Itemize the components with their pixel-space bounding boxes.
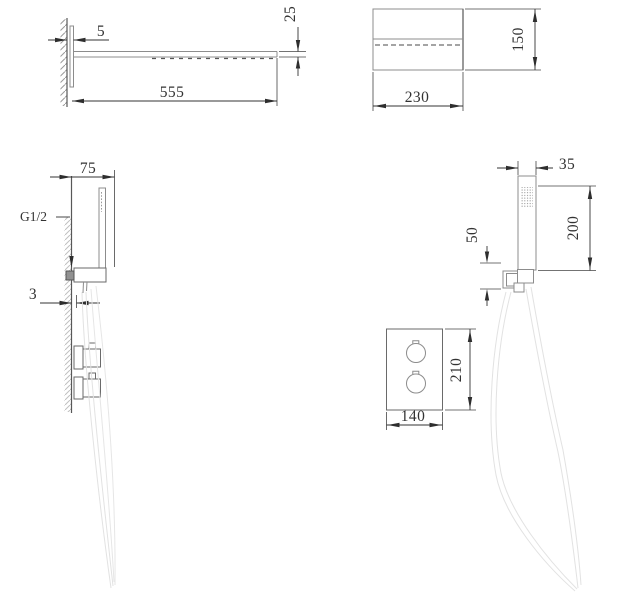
dimension-3: 3 <box>29 286 100 308</box>
arrowhead <box>388 423 400 427</box>
dimension-230: 230 <box>373 72 463 111</box>
dim-label-plate-thickness: 5 <box>97 23 105 40</box>
hose-side-view <box>82 286 115 588</box>
dim-label-wall-offset: 75 <box>80 160 96 177</box>
thread-label: G1/2 <box>20 209 47 224</box>
arrowhead <box>485 252 489 264</box>
dimension-50: 50 <box>464 227 501 306</box>
dimension-150: 150 <box>465 9 541 70</box>
dim-label-plate-thickness: 3 <box>29 286 37 303</box>
hose-loop <box>491 287 581 591</box>
head-side-view: 5 555 25 <box>48 6 306 107</box>
dimension-35: 35 <box>497 156 575 175</box>
arrowhead <box>533 10 537 22</box>
holder-bracket-side <box>74 268 106 282</box>
arrowhead <box>296 57 300 69</box>
arrowhead <box>533 57 537 69</box>
dim-label-length: 555 <box>160 84 184 101</box>
dimension-210: 210 <box>445 329 476 410</box>
arrowhead <box>74 38 86 42</box>
dimension-5: 5 <box>48 23 109 42</box>
dimension-555: 555 <box>72 58 277 106</box>
hand-shower-wand-side <box>99 188 106 268</box>
hand-shower-side-view: 75 G1/2 3 <box>20 160 115 588</box>
arrowhead <box>374 104 386 108</box>
arrowhead <box>296 40 300 52</box>
dim-label-height: 150 <box>510 27 527 51</box>
dim-label-holder-height: 50 <box>464 227 481 243</box>
arrowhead <box>103 175 115 179</box>
arrowhead <box>485 289 489 301</box>
hose-connector-line <box>83 282 84 293</box>
shower-set-technical-drawing: 5 555 25 150 <box>0 0 629 600</box>
arrowhead <box>588 258 592 270</box>
dim-label-width: 35 <box>559 156 575 173</box>
dim-label-height: 25 <box>282 6 299 22</box>
hand-shower-front-view: 35 200 50 <box>464 156 596 591</box>
dim-label-width: 140 <box>401 408 425 425</box>
valve-front-view: 210 140 <box>387 329 477 430</box>
arrowhead <box>72 99 84 103</box>
hose-nut <box>518 270 534 284</box>
dimension-140: 140 <box>387 408 443 430</box>
head-front-view: 150 230 <box>373 9 541 111</box>
arrowhead <box>536 166 548 170</box>
dim-label-width: 230 <box>405 89 429 106</box>
technical-drawing-page: 5 555 25 150 <box>0 0 629 600</box>
arrowhead <box>588 187 592 199</box>
arrowhead <box>450 104 462 108</box>
wall-hatch <box>61 19 68 106</box>
spray-face-dots <box>522 187 534 208</box>
arrowhead <box>468 330 472 342</box>
dim-label-length: 200 <box>565 216 582 240</box>
hose-swivel <box>514 283 524 292</box>
arrowhead <box>430 423 442 427</box>
wall-plate <box>70 26 74 87</box>
wall-supply-elbow <box>66 271 74 280</box>
hose-connector-line <box>87 282 88 291</box>
arrowhead <box>468 397 472 409</box>
dimension-25: 25 <box>279 6 306 76</box>
thread-callout: G1/2 <box>20 209 70 224</box>
dimension-200: 200 <box>538 186 596 271</box>
arrowhead <box>506 166 518 170</box>
arrowhead <box>60 175 72 179</box>
dim-label-height: 210 <box>448 358 465 382</box>
wall-hatch <box>65 217 72 412</box>
arrowhead <box>265 99 277 103</box>
